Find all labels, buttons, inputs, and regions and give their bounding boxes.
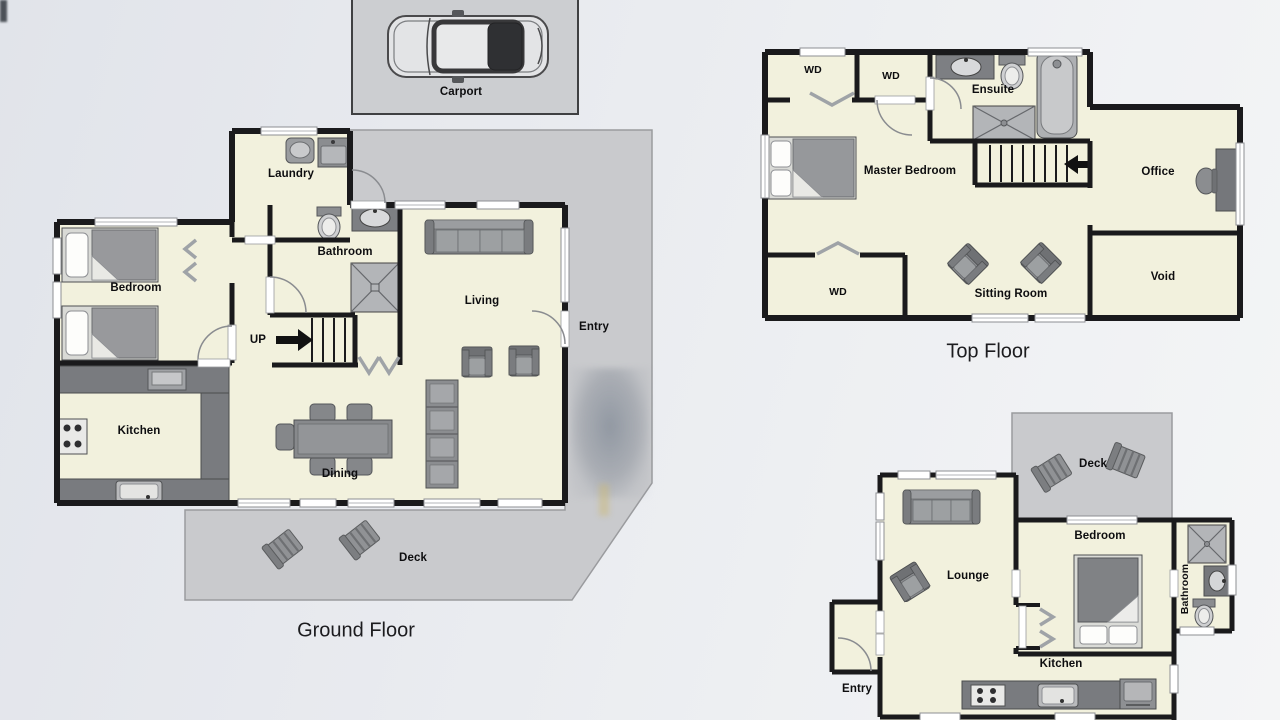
- bathtub-icon: [1037, 52, 1077, 138]
- floor-plan-document: Carport Laundry Bathroom Bedroom UP Livi…: [0, 0, 1280, 720]
- floor-plan-graphics: [0, 0, 1280, 720]
- sofa-icon: [425, 220, 533, 254]
- room-label-ensuite: Ensuite: [972, 84, 1014, 96]
- kitchen-sink-icon: [1038, 684, 1078, 707]
- armchair-icon: [462, 347, 492, 377]
- shower-icon: [1188, 525, 1226, 563]
- room-label-entry: Entry: [842, 683, 872, 695]
- room-label-master-bedroom: Master Bedroom: [864, 165, 956, 177]
- photo-corner-artifact: [0, 0, 7, 22]
- stove-icon: [971, 685, 1005, 706]
- double-bed-icon: [1074, 555, 1142, 648]
- carport-label: Carport: [440, 86, 482, 98]
- lower-floor-plan: [832, 413, 1236, 720]
- room-label-kitchen: Kitchen: [1040, 658, 1083, 670]
- room-label-entry: Entry: [579, 321, 609, 333]
- room-label-office: Office: [1141, 166, 1174, 178]
- dishwasher-icon: [1120, 679, 1156, 709]
- double-bed-icon: [767, 137, 856, 199]
- bathroom-sink-icon: [1204, 566, 1230, 596]
- toilet-icon: [317, 207, 341, 240]
- sideboard-icon: [426, 380, 458, 488]
- room-label-void: Void: [1151, 271, 1175, 283]
- room-label-wd: WD: [829, 286, 847, 298]
- shower-icon: [973, 106, 1035, 140]
- single-bed-icon: [62, 228, 158, 282]
- ground-floor-title: Ground Floor: [297, 620, 415, 643]
- room-label-wd: WD: [882, 70, 900, 82]
- room-label-bedroom: Bedroom: [110, 282, 161, 294]
- washing-machine-icon: [318, 138, 349, 167]
- armchair-icon: [509, 346, 539, 376]
- kitchen-sink-icon: [116, 481, 162, 502]
- top-floor-title: Top Floor: [946, 341, 1029, 364]
- room-label-bedroom: Bedroom: [1074, 530, 1125, 542]
- room-label-living: Living: [465, 295, 499, 307]
- ensuite-vanity-icon: [936, 55, 994, 79]
- room-label-wd: WD: [804, 64, 822, 76]
- room-label-sitting-room: Sitting Room: [975, 288, 1048, 300]
- erased-smudge-mark: [599, 484, 609, 516]
- shower-icon: [351, 263, 399, 312]
- room-label-bathroom: Bathroom: [1179, 564, 1191, 614]
- room-label-kitchen: Kitchen: [118, 425, 161, 437]
- ground-floor-plan: [53, 127, 652, 600]
- single-bed-icon: [62, 306, 158, 360]
- stove-icon: [59, 419, 87, 454]
- room-label-up: UP: [250, 334, 266, 346]
- room-label-bathroom: Bathroom: [317, 246, 372, 258]
- bathroom-vanity-icon: [352, 207, 399, 231]
- room-label-laundry: Laundry: [268, 168, 314, 180]
- laundry-tub-icon: [286, 138, 314, 163]
- erased-smudge: [570, 368, 650, 498]
- car-icon: [388, 10, 548, 83]
- room-label-dining: Dining: [322, 468, 358, 480]
- room-label-lounge: Lounge: [947, 570, 989, 582]
- sofa-icon: [903, 490, 980, 524]
- room-label-deck: Deck: [399, 552, 427, 564]
- room-label-deck: Deck: [1079, 458, 1107, 470]
